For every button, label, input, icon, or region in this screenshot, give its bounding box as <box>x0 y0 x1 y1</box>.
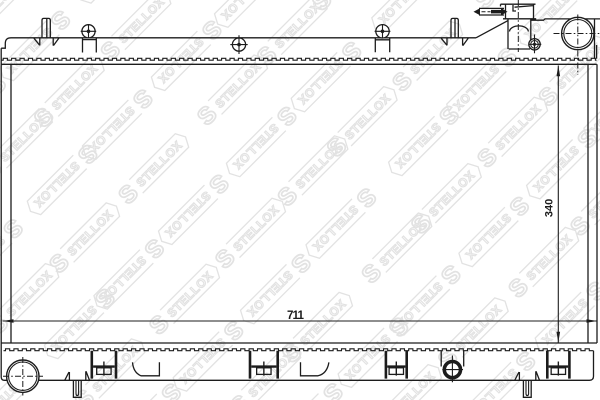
svg-text:711: 711 <box>287 309 304 322</box>
svg-text:340: 340 <box>544 199 556 217</box>
